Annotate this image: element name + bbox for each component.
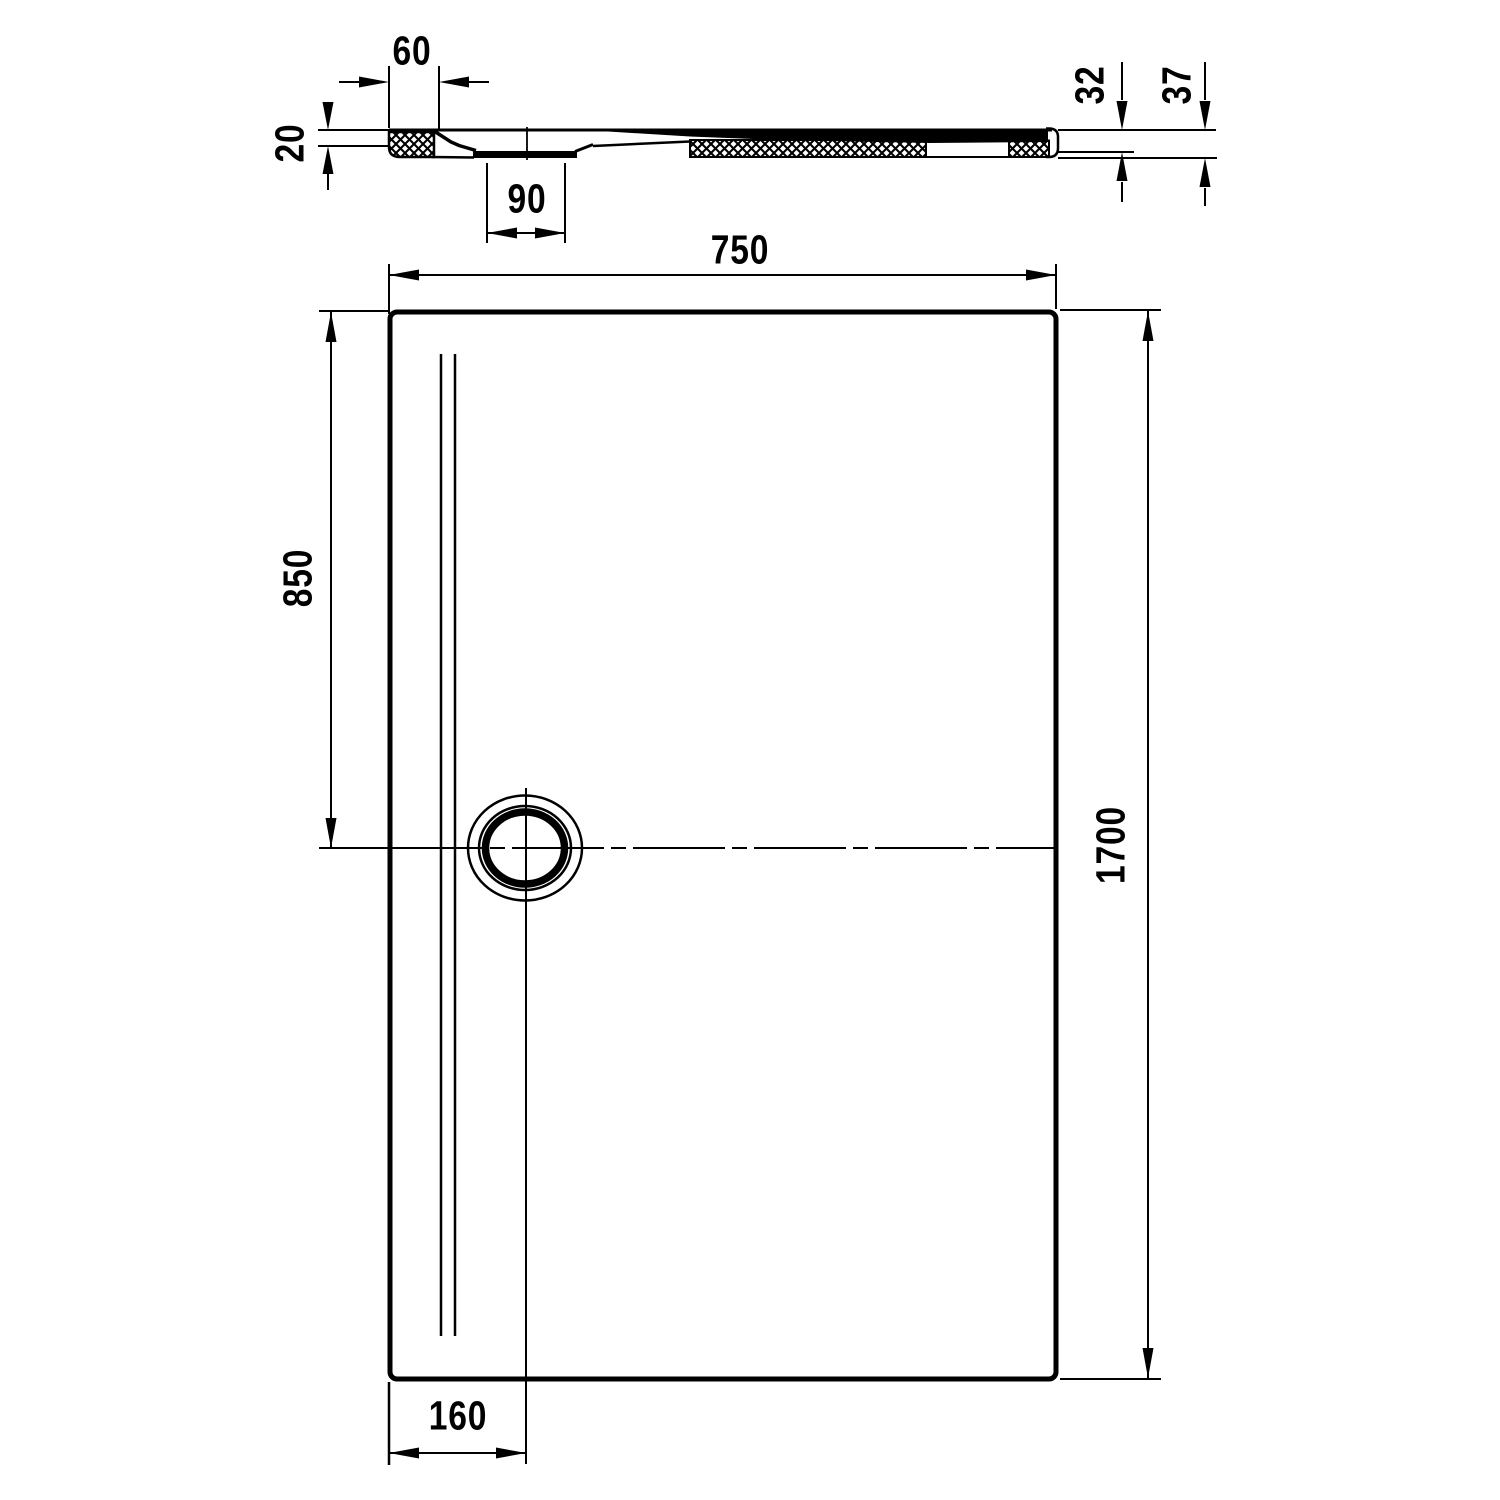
dim-label-width: 750 [711, 230, 770, 271]
dim-label-body-height: 32 [1070, 65, 1111, 104]
section-bottom-left-line [432, 157, 474, 158]
section-left-seal-block [389, 132, 434, 157]
section-recess-step-up [575, 145, 593, 152]
dim-label-drain-from-left: 160 [429, 1396, 488, 1437]
dim-20 [318, 102, 390, 190]
tray-outline [390, 312, 1056, 1379]
section-recess-step-down [434, 131, 476, 151]
dim-label-rim-thickness: 20 [270, 123, 311, 162]
dim-label-drain-from-top: 850 [278, 549, 319, 608]
gradient-channel-lines [441, 354, 455, 1336]
drawing-linework [0, 0, 1500, 1500]
dim-label-total-height: 37 [1157, 65, 1198, 104]
section-underside-line [593, 142, 690, 147]
dim-label-length: 1700 [1091, 806, 1132, 884]
section-right-seal-block [1009, 141, 1049, 158]
section-view [389, 127, 1058, 160]
section-mid-hatch-band [690, 140, 926, 157]
technical-drawing-canvas: 60 20 90 32 37 750 850 1700 160 [0, 0, 1500, 1500]
dim-60 [339, 66, 489, 131]
dim-850 [319, 311, 390, 848]
dim-label-edge-offset: 60 [392, 31, 431, 72]
dim-label-recess-width: 90 [507, 179, 546, 220]
plan-view [390, 312, 1056, 1464]
